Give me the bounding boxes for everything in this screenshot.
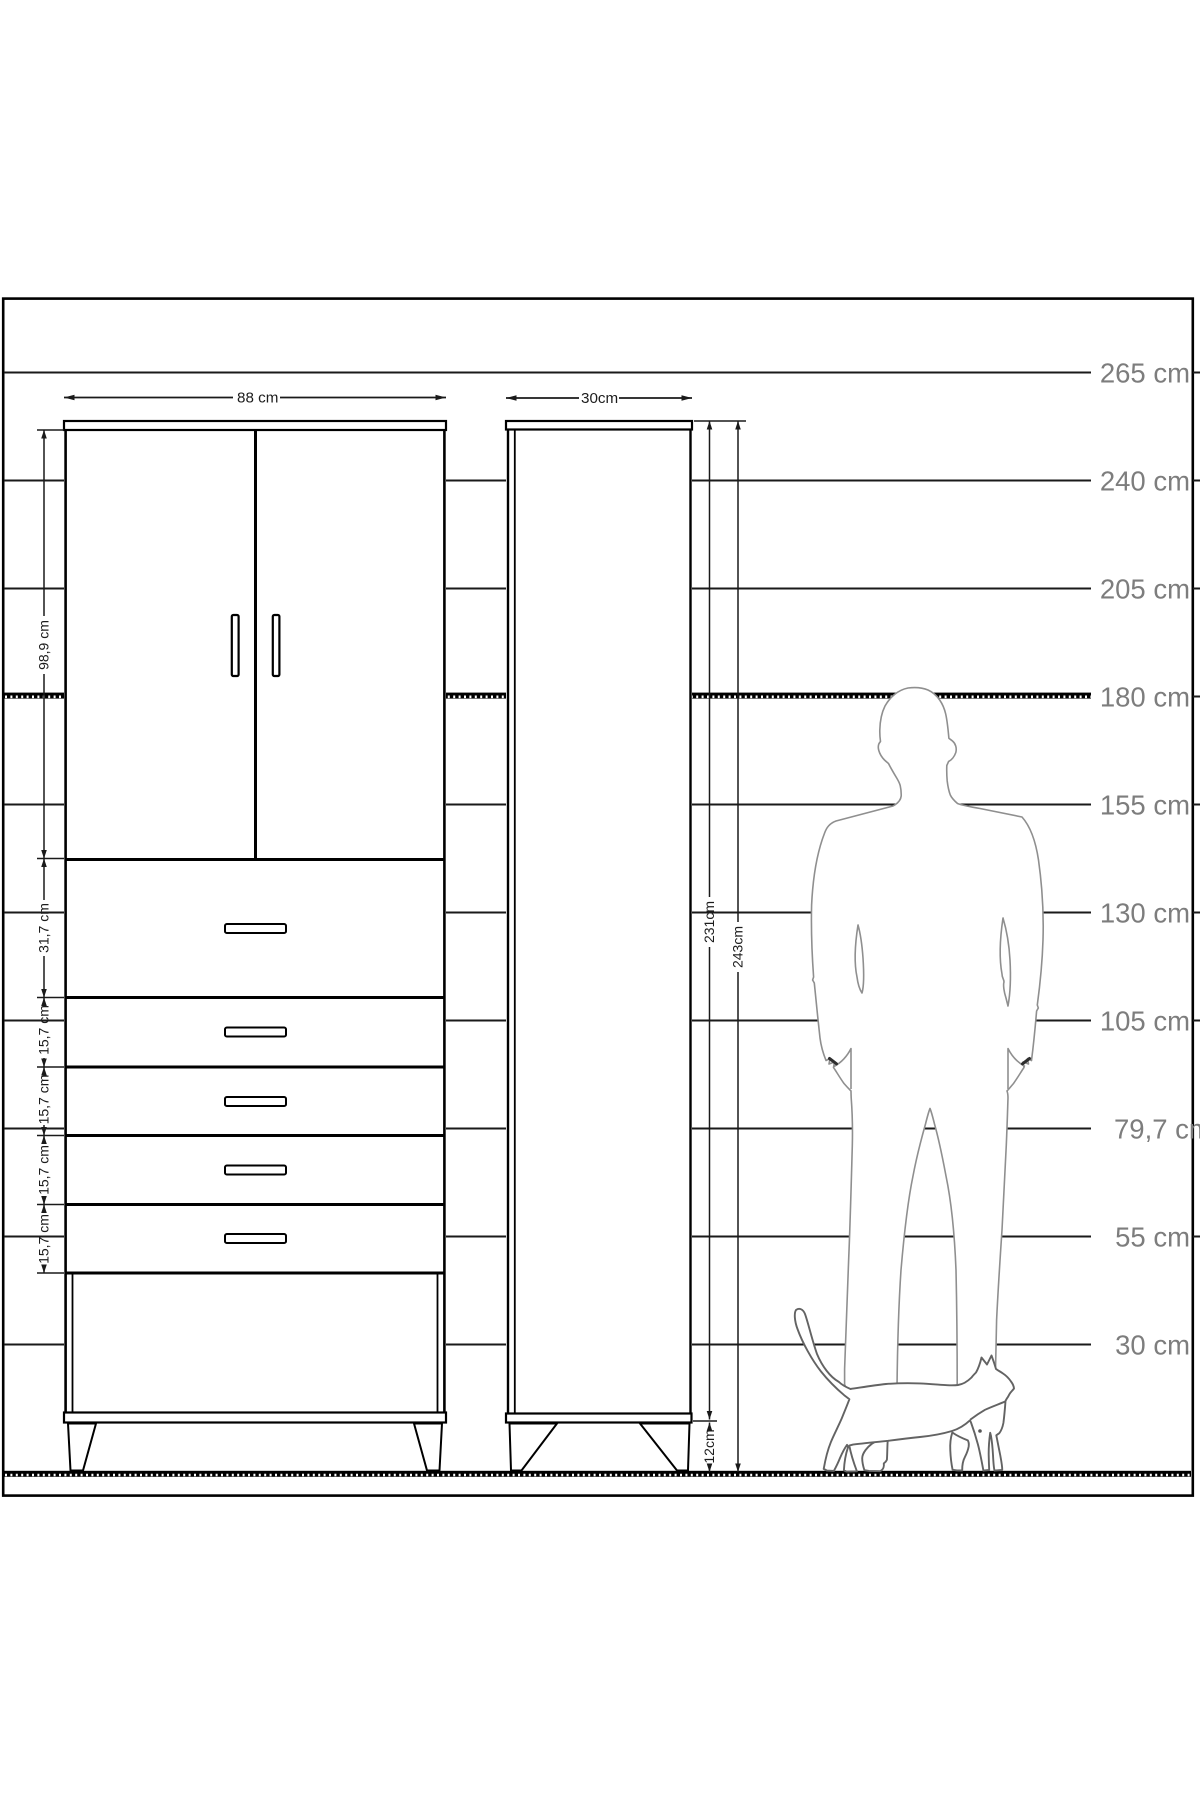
svg-text:231cm: 231cm xyxy=(701,901,717,943)
svg-text:243cm: 243cm xyxy=(730,926,746,968)
svg-text:98,9 cm: 98,9 cm xyxy=(36,620,52,670)
svg-text:180 cm: 180 cm xyxy=(1100,682,1190,713)
svg-text:105 cm: 105 cm xyxy=(1100,1006,1190,1037)
svg-text:155 cm: 155 cm xyxy=(1100,790,1190,821)
svg-text:240 cm: 240 cm xyxy=(1100,466,1190,497)
svg-text:130 cm: 130 cm xyxy=(1100,898,1190,929)
svg-text:30cm: 30cm xyxy=(581,390,618,407)
svg-text:15,7 cm: 15,7 cm xyxy=(36,1005,52,1055)
svg-text:15,7 cm: 15,7 cm xyxy=(36,1075,52,1125)
svg-text:55 cm: 55 cm xyxy=(1115,1222,1190,1253)
svg-text:31,7 cm: 31,7 cm xyxy=(36,903,52,953)
svg-text:15,7 cm: 15,7 cm xyxy=(36,1145,52,1195)
svg-text:88 cm: 88 cm xyxy=(237,390,278,407)
svg-text:79,7 cm: 79,7 cm xyxy=(1114,1114,1200,1145)
svg-text:205 cm: 205 cm xyxy=(1100,574,1190,605)
svg-text:15,7 cm: 15,7 cm xyxy=(36,1214,52,1264)
svg-text:265 cm: 265 cm xyxy=(1100,358,1190,389)
svg-text:12cm: 12cm xyxy=(701,1429,717,1463)
svg-text:30 cm: 30 cm xyxy=(1115,1330,1190,1361)
